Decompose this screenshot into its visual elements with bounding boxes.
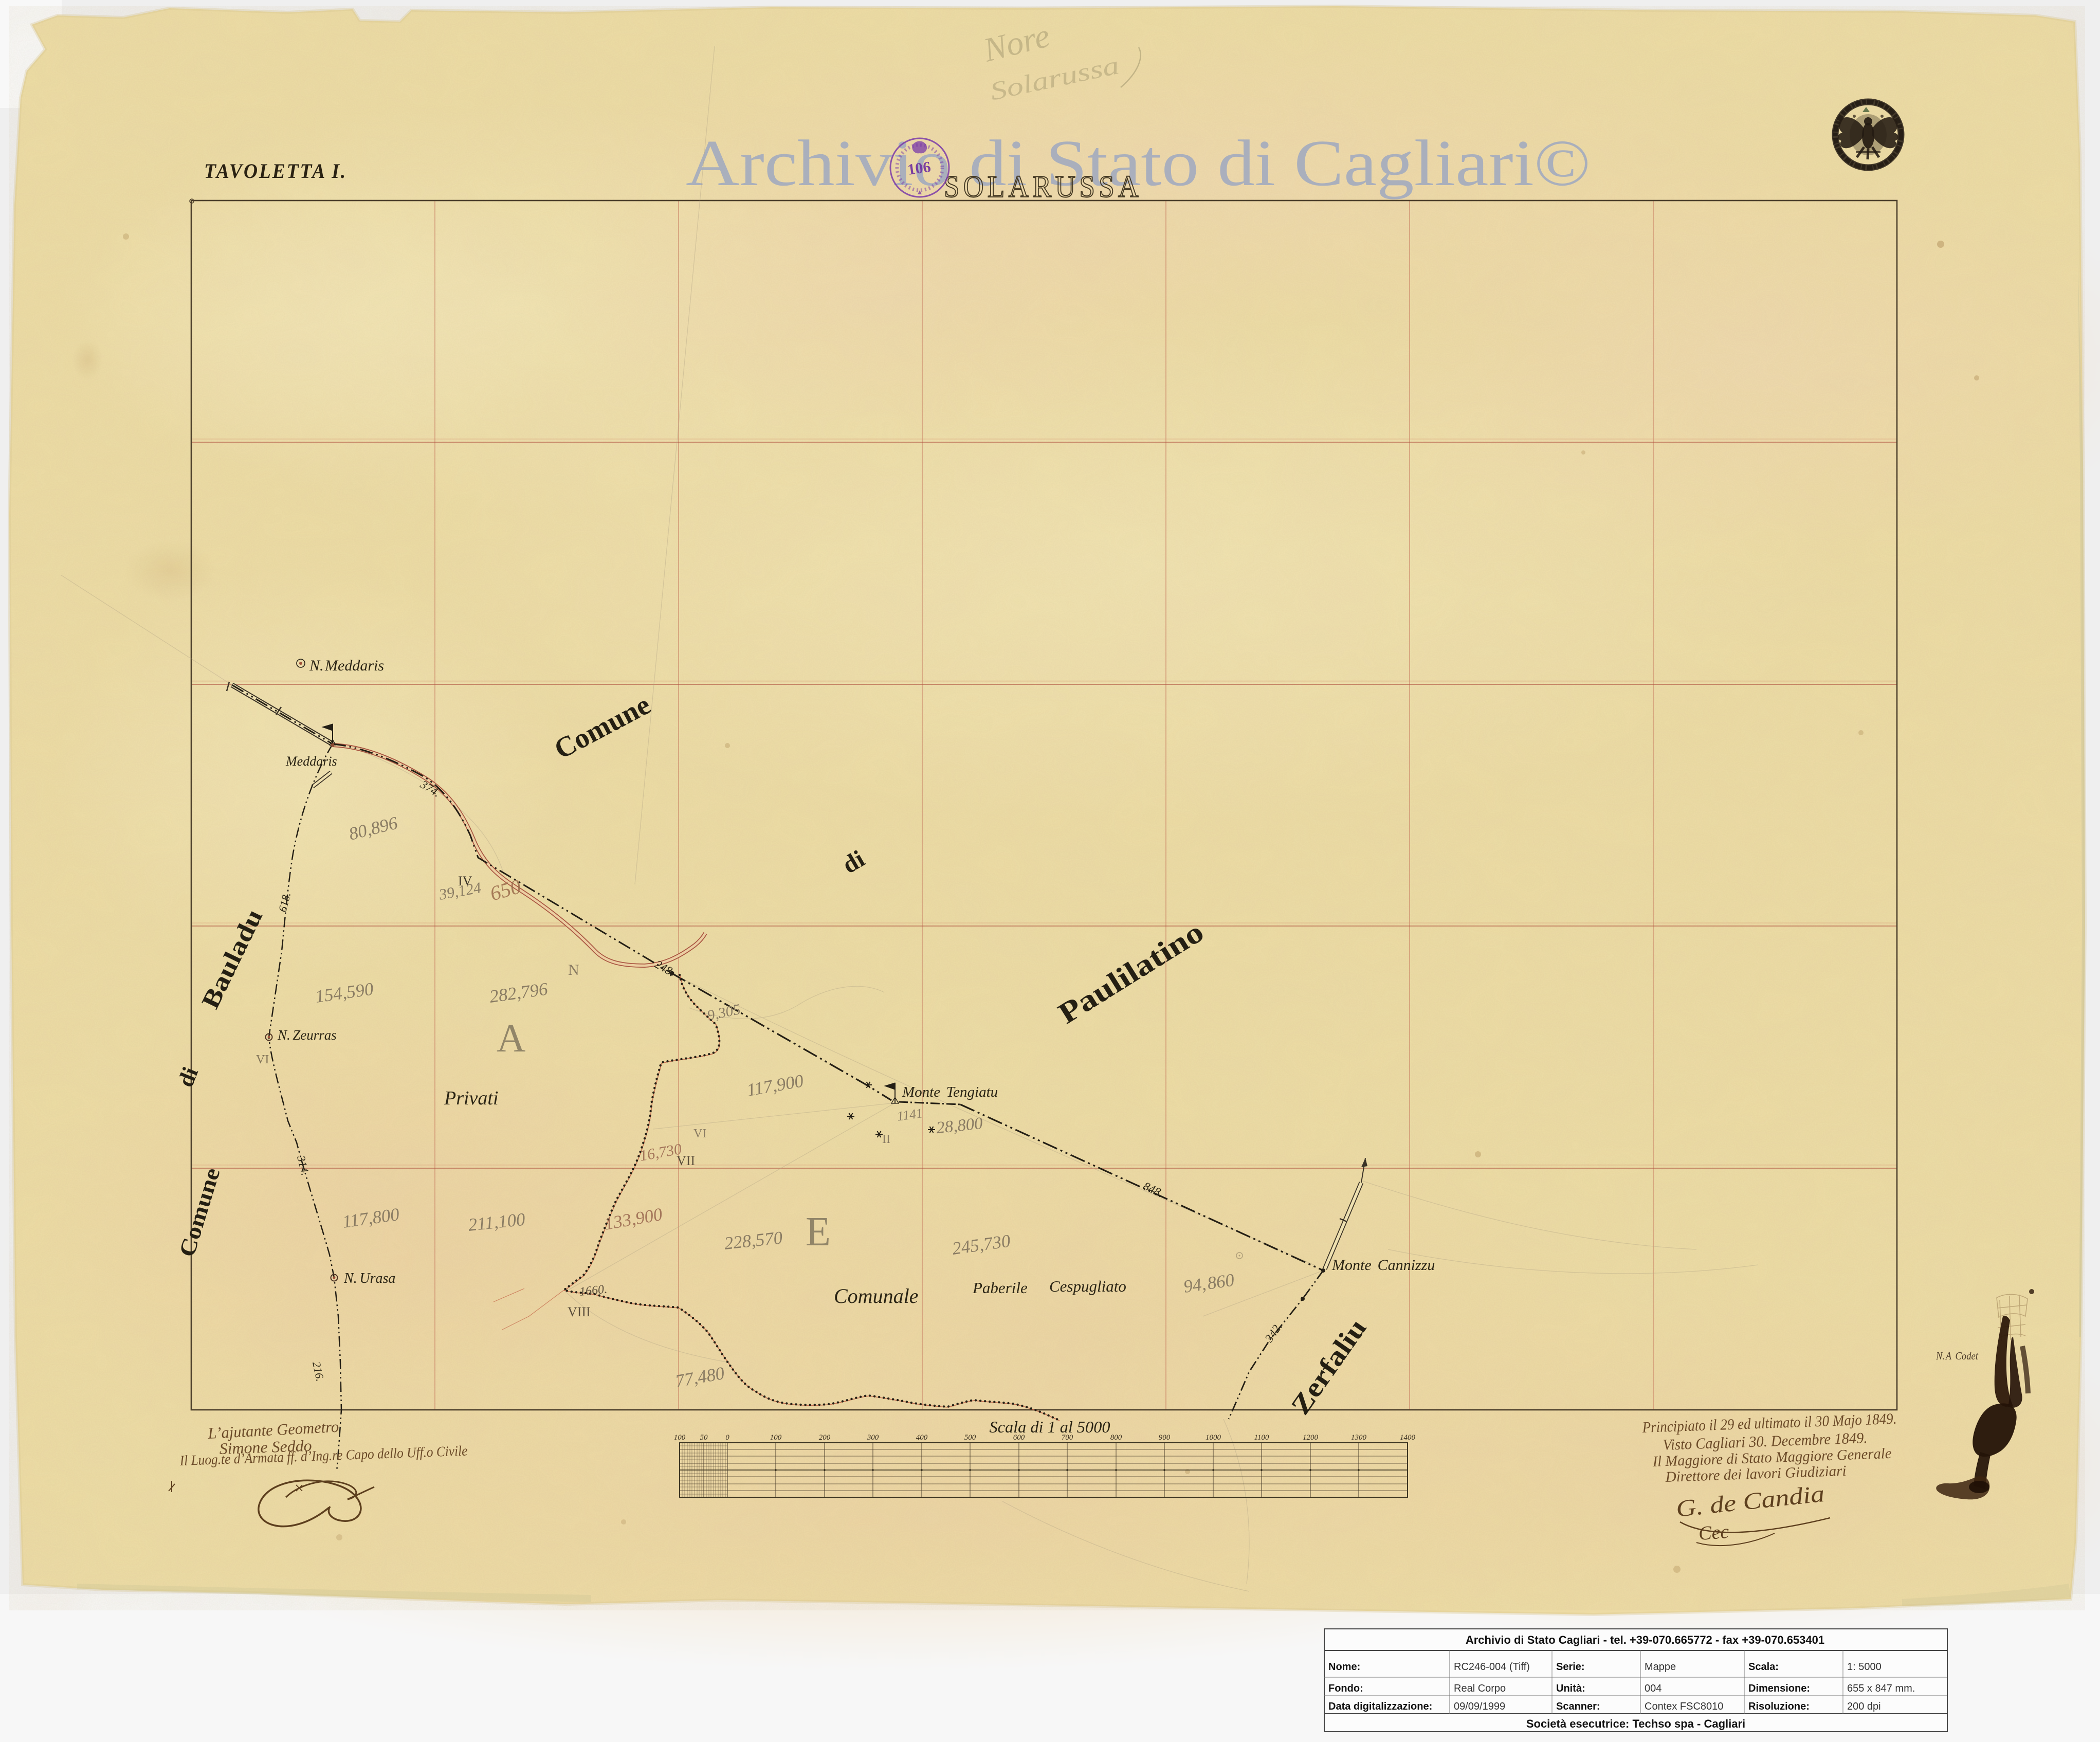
svg-text:09/09/1999: 09/09/1999 bbox=[1454, 1701, 1505, 1712]
svg-text:100: 100 bbox=[674, 1433, 686, 1442]
svg-text:106: 106 bbox=[906, 158, 932, 178]
svg-text:II: II bbox=[882, 1133, 890, 1146]
svg-text:Serie:: Serie: bbox=[1556, 1661, 1585, 1673]
svg-text:900: 900 bbox=[1159, 1433, 1171, 1442]
svg-text:Nome:: Nome: bbox=[1328, 1661, 1360, 1673]
svg-text:Meddaris: Meddaris bbox=[285, 754, 337, 769]
svg-text:004: 004 bbox=[1645, 1683, 1661, 1694]
svg-text:Cec: Cec bbox=[1698, 1521, 1730, 1545]
svg-text:Monte Cannizzu: Monte Cannizzu bbox=[1331, 1257, 1435, 1274]
svg-text:N. A Codet: N. A Codet bbox=[1935, 1350, 1979, 1362]
svg-text:Mappe: Mappe bbox=[1645, 1661, 1676, 1673]
svg-text:1100: 1100 bbox=[1254, 1433, 1269, 1442]
svg-text:800: 800 bbox=[1110, 1433, 1122, 1442]
svg-text:200: 200 bbox=[819, 1433, 831, 1442]
svg-text:VI: VI bbox=[693, 1127, 706, 1140]
svg-text:Archivio di Stato Cagliari - t: Archivio di Stato Cagliari - tel. +39-07… bbox=[1466, 1634, 1824, 1646]
svg-text:Dimensione:: Dimensione: bbox=[1748, 1683, 1810, 1694]
svg-text:200 dpi: 200 dpi bbox=[1847, 1701, 1881, 1712]
svg-text:SOLARUSSA: SOLARUSSA bbox=[944, 170, 1142, 204]
svg-text:Contex FSC8010: Contex FSC8010 bbox=[1645, 1701, 1723, 1712]
svg-text:Unità:: Unità: bbox=[1556, 1683, 1585, 1694]
svg-text:N. Zeurras: N. Zeurras bbox=[277, 1027, 337, 1043]
svg-text:A: A bbox=[497, 1015, 525, 1060]
svg-text:E: E bbox=[806, 1209, 831, 1255]
svg-text:Scala di 1 al 5000: Scala di 1 al 5000 bbox=[990, 1418, 1110, 1436]
svg-text:500: 500 bbox=[964, 1433, 976, 1442]
svg-text:VIII: VIII bbox=[568, 1304, 591, 1319]
svg-text:Società esecutrice: Techso spa: Società esecutrice: Techso spa - Cagliar… bbox=[1526, 1717, 1745, 1730]
svg-text:Real Corpo: Real Corpo bbox=[1454, 1683, 1506, 1694]
svg-text:Data digitalizzazione:: Data digitalizzazione: bbox=[1328, 1701, 1432, 1712]
svg-text:RC246-004 (Tiff): RC246-004 (Tiff) bbox=[1454, 1661, 1530, 1673]
svg-text:N. Urasa: N. Urasa bbox=[343, 1271, 395, 1286]
svg-text:1000: 1000 bbox=[1206, 1433, 1221, 1442]
svg-text:600: 600 bbox=[1013, 1433, 1025, 1442]
svg-text:Cespugliato: Cespugliato bbox=[1049, 1277, 1126, 1295]
svg-text:1: 5000: 1: 5000 bbox=[1847, 1661, 1882, 1673]
svg-text:Comunale: Comunale bbox=[834, 1284, 918, 1308]
svg-text:Scanner:: Scanner: bbox=[1556, 1701, 1600, 1712]
svg-text:1300: 1300 bbox=[1351, 1433, 1367, 1442]
svg-text:Paberile: Paberile bbox=[972, 1279, 1028, 1297]
svg-text:0: 0 bbox=[725, 1433, 729, 1442]
svg-text:655 x 847 mm.: 655 x 847 mm. bbox=[1847, 1683, 1915, 1694]
svg-text:TAVOLETTA I.: TAVOLETTA I. bbox=[204, 159, 347, 183]
svg-text:N: N bbox=[568, 961, 579, 978]
svg-text:N. Meddaris: N. Meddaris bbox=[309, 657, 384, 674]
svg-text:1400: 1400 bbox=[1400, 1433, 1416, 1442]
svg-text:Fondo:: Fondo: bbox=[1328, 1683, 1363, 1694]
svg-text:300: 300 bbox=[867, 1433, 879, 1442]
svg-text:100: 100 bbox=[770, 1433, 782, 1442]
svg-text:VI: VI bbox=[256, 1053, 269, 1066]
svg-text:Privati: Privati bbox=[444, 1087, 499, 1109]
svg-text:1200: 1200 bbox=[1303, 1433, 1319, 1442]
svg-text:Scala:: Scala: bbox=[1748, 1661, 1779, 1673]
svg-text:Monte Tengiatu: Monte Tengiatu bbox=[902, 1084, 998, 1100]
svg-text:50: 50 bbox=[700, 1433, 708, 1442]
svg-text:Risoluzione:: Risoluzione: bbox=[1748, 1701, 1810, 1712]
svg-text:700: 700 bbox=[1062, 1433, 1073, 1442]
svg-text:400: 400 bbox=[916, 1433, 928, 1442]
